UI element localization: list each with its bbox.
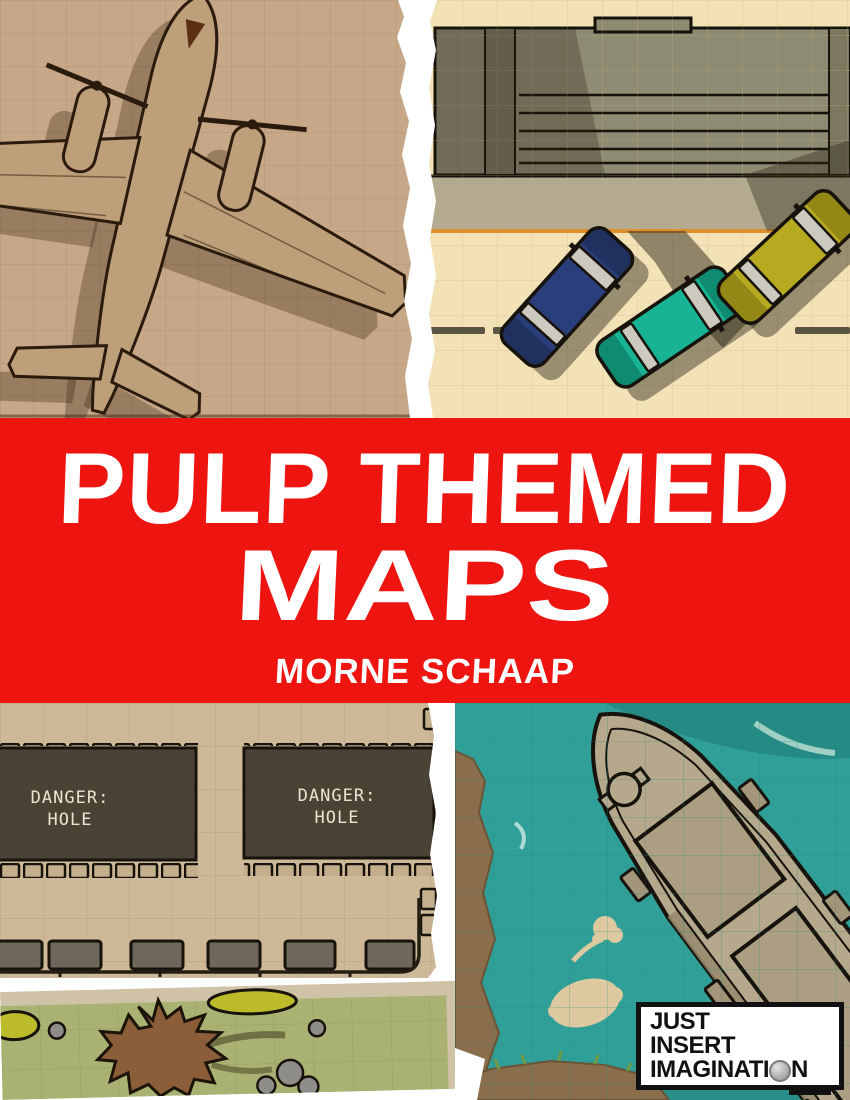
- title-banner: PULP THEMED MAPS MORNE SCHAAP: [0, 418, 850, 703]
- svg-text:HOLE: HOLE: [48, 810, 93, 830]
- svg-text:HOLE: HOLE: [315, 808, 360, 828]
- street-map-graphic: [427, 0, 850, 418]
- logo-word-imagination: IMAGINATIN: [650, 1058, 839, 1082]
- map-panel-airplane: [0, 0, 412, 418]
- page-title: PULP THEMED MAPS: [58, 442, 791, 636]
- logo-word-just: JUST: [650, 1010, 839, 1034]
- coin-icon: [769, 1060, 791, 1082]
- danger-walkway-graphic: DANGER: HOLE DANGER: HOLE: [0, 703, 438, 978]
- airplane-map-graphic: [0, 0, 412, 418]
- logo-word-insert: INSERT: [650, 1034, 839, 1058]
- grass-map-graphic: [0, 981, 461, 1100]
- title-line1: PULP THEMED: [57, 442, 793, 537]
- danger-sign-text: DANGER:: [31, 788, 110, 808]
- danger-walkway-left: DANGER: HOLE: [0, 730, 198, 878]
- map-panel-street: [427, 0, 850, 418]
- title-line2: MAPS: [0, 537, 850, 636]
- map-panel-danger-walkway: DANGER: HOLE DANGER: HOLE: [0, 703, 438, 978]
- danger-sign-text: DANGER:: [298, 786, 377, 806]
- author-name: MORNE SCHAAP: [274, 652, 576, 692]
- publisher-logo: JUST INSERT IMAGINATIN: [636, 1002, 844, 1090]
- map-panel-grass: [0, 981, 461, 1100]
- danger-walkway-right: DANGER: HOLE: [244, 730, 434, 876]
- coin-slot: [789, 1088, 831, 1095]
- cover-root: PULP THEMED MAPS MORNE SCHAAP DANGE: [0, 0, 850, 1100]
